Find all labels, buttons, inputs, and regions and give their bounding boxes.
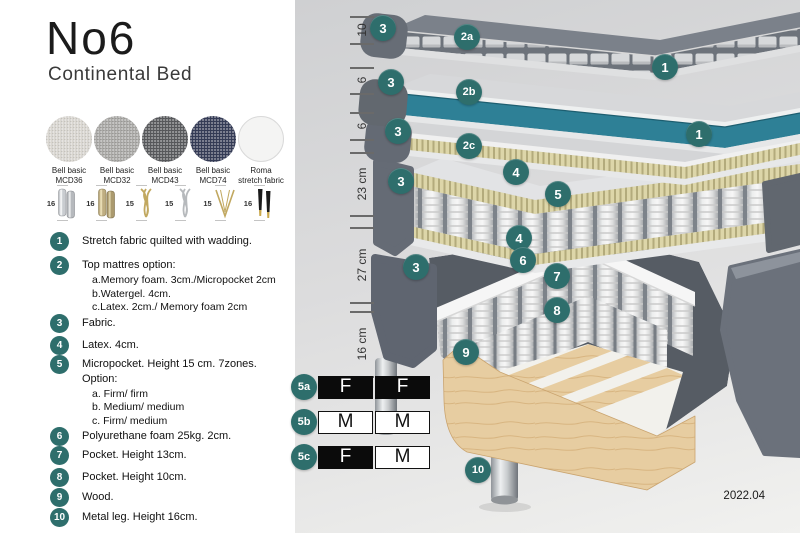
ruler-tick — [350, 67, 374, 69]
spec-number-badge: 9 — [50, 488, 69, 507]
ruler-measurement: 10 — [355, 23, 369, 36]
ruler-tick — [350, 139, 374, 141]
callout-3: 3 — [403, 254, 429, 280]
spec-number-badge: 8 — [50, 468, 69, 487]
leg-option-cylinder-brass: 16 — [84, 184, 119, 222]
spec-item-text: Fabric. — [82, 316, 116, 331]
callout-1: 1 — [686, 121, 712, 147]
spec-item-1: 1Stretch fabric quilted with wadding. — [50, 232, 290, 251]
firmness-badge: 5a — [291, 374, 317, 400]
callout-7: 7 — [544, 263, 570, 289]
dash-icon — [136, 185, 147, 186]
fabric-swatch-circle — [142, 116, 188, 162]
spec-subitem: c.Latex. 2cm./ Memory foam 2cm — [92, 301, 276, 314]
hairpin-gold-leg-icon — [213, 187, 237, 219]
dash-icon — [96, 185, 107, 186]
dash-icon — [175, 185, 186, 186]
leg-height-label: 15 — [126, 199, 134, 208]
base-box — [375, 234, 800, 512]
ruler-tick — [350, 93, 374, 95]
callout-5: 5 — [545, 181, 571, 207]
spec-number-badge: 6 — [50, 427, 69, 446]
ruler-tick — [350, 112, 374, 114]
fabric-swatch-caption: Bell basicMCD43 — [148, 166, 182, 185]
spec-item-text: Pocket. Height 13cm. — [82, 448, 187, 463]
leg-height-label: 16 — [86, 199, 94, 208]
spec-item-4: 4Latex. 4cm. — [50, 336, 290, 355]
spec-number-badge: 10 — [50, 508, 69, 527]
dash-icon — [57, 220, 68, 221]
fabric-swatch-mcd36: Bell basicMCD36 — [45, 116, 93, 185]
spec-item-text: Wood. — [82, 490, 114, 505]
fabric-swatch-caption: Bell basicMCD36 — [52, 166, 86, 185]
spec-subitem: a. Firm/ firm — [92, 388, 290, 401]
spec-item-2: 2Top mattres option:a.Memory foam. 3cm./… — [50, 256, 290, 314]
ruler-tick — [350, 215, 374, 217]
fabric-swatches: Bell basicMCD36Bell basicMCD32Bell basic… — [45, 116, 285, 185]
firmness-cell: M — [375, 411, 430, 434]
fabric-swatch-circle — [190, 116, 236, 162]
ruler-measurement: 6 — [355, 122, 369, 129]
ruler-measurement: 23 cm — [355, 167, 369, 200]
ruler-tick — [350, 152, 374, 154]
spec-number-badge: 1 — [50, 232, 69, 251]
fabric-swatch-caption: Bell basicMCD74 — [196, 166, 230, 185]
ruler-tick — [350, 16, 374, 18]
spec-item-text: Metal leg. Height 16cm. — [82, 510, 198, 525]
ruler-tick — [350, 43, 374, 45]
firmness-cell: F — [318, 446, 373, 469]
fabric-swatch-mcd32: Bell basicMCD32 — [93, 116, 141, 185]
twist-gold-leg-icon — [135, 187, 157, 219]
callout-9: 9 — [453, 339, 479, 365]
page-title: No6 — [46, 14, 295, 62]
leg-height-label: 16 — [47, 199, 55, 208]
spec-subitem: b. Medium/ medium — [92, 401, 290, 414]
twist-silver-leg-icon — [174, 187, 196, 219]
diagram-panel: 106623 cm27 cm16 cm 32a132b32c1345463789… — [295, 0, 800, 533]
spec-item-7: 7Pocket. Height 13cm. — [50, 446, 290, 465]
firmness-cell: F — [318, 376, 373, 399]
spec-number-badge: 7 — [50, 446, 69, 465]
leg-option-twist-gold: 15 — [124, 184, 159, 222]
fabric-swatch-stretch-fabric: Romastretch fabric — [237, 116, 285, 185]
dash-icon — [96, 220, 107, 221]
leg-height-label: 16 — [244, 199, 252, 208]
ruler-measurement: 6 — [355, 77, 369, 84]
leg-option-hairpin-gold: 15 — [203, 184, 238, 222]
dash-icon — [136, 220, 147, 221]
callout-4: 4 — [503, 159, 529, 185]
spec-item-text: Micropocket. Height 15 cm. 7zones. Optio… — [82, 357, 290, 387]
spec-number-badge: 3 — [50, 314, 69, 333]
leg-option-taper-black-gold: 16 — [242, 184, 277, 222]
fabric-swatch-circle — [46, 116, 92, 162]
layer-topmattress-2a — [359, 12, 800, 80]
leg-option-twist-silver: 15 — [163, 184, 198, 222]
fabric-swatch-caption: Bell basicMCD32 — [100, 166, 134, 185]
spec-item-text: Stretch fabric quilted with wadding. — [82, 234, 252, 249]
callout-6: 6 — [510, 247, 536, 273]
dash-icon — [254, 185, 265, 186]
fabric-swatch-circle — [238, 116, 284, 162]
firmness-cell: F — [375, 376, 430, 399]
cylinder-silver-leg-icon — [56, 187, 78, 219]
leg-height-label: 15 — [165, 199, 173, 208]
taper-black-gold-leg-icon — [253, 187, 275, 219]
fabric-swatch-circle — [94, 116, 140, 162]
infographic: No6 Continental Bed Bell basicMCD36Bell … — [0, 0, 800, 533]
callout-8: 8 — [544, 297, 570, 323]
version-label: 2022.04 — [723, 490, 765, 502]
dash-icon — [57, 185, 68, 186]
ruler-measurement: 27 cm — [355, 248, 369, 281]
fabric-swatch-mcd74: Bell basicMCD74 — [189, 116, 237, 185]
fabric-swatch-caption: Romastretch fabric — [238, 166, 284, 185]
firmness-cell: M — [375, 446, 430, 469]
page-subtitle: Continental Bed — [48, 64, 295, 86]
callout-2c: 2c — [456, 133, 482, 159]
callout-3: 3 — [370, 15, 396, 41]
leg-options: 161615151516 — [45, 184, 277, 222]
spec-item-5: 5Micropocket. Height 15 cm. 7zones. Opti… — [50, 355, 290, 428]
left-panel: No6 Continental Bed Bell basicMCD36Bell … — [0, 0, 295, 533]
spec-number-badge: 2 — [50, 256, 69, 275]
leg-option-cylinder-silver: 16 — [45, 184, 80, 222]
ruler-tick — [350, 302, 374, 304]
leg-height-label: 15 — [203, 199, 211, 208]
firmness-badge: 5c — [291, 444, 317, 470]
dash-icon — [215, 220, 226, 221]
callout-1: 1 — [652, 54, 678, 80]
spec-item-9: 9Wood. — [50, 488, 290, 507]
spec-item-text: Polyurethane foam 25kg. 2cm. — [82, 429, 231, 444]
spec-item-3: 3Fabric. — [50, 314, 290, 333]
dash-icon — [175, 220, 186, 221]
callout-3: 3 — [388, 168, 414, 194]
spec-item-text: Pocket. Height 10cm. — [82, 470, 187, 485]
spec-item-8: 8Pocket. Height 10cm. — [50, 468, 290, 487]
spec-subitem: a.Memory foam. 3cm./Micropocket 2cm — [92, 274, 276, 287]
callout-3: 3 — [378, 69, 404, 95]
callout-10: 10 — [465, 457, 491, 483]
ruler-measurement: 16 cm — [355, 327, 369, 360]
dash-icon — [254, 220, 265, 221]
spec-item-6: 6Polyurethane foam 25kg. 2cm. — [50, 427, 290, 446]
cylinder-brass-leg-icon — [96, 187, 118, 219]
spec-item-text: Top mattres option: — [82, 258, 276, 273]
firmness-cell: M — [318, 411, 373, 434]
ruler-tick — [350, 311, 374, 313]
callout-2a: 2a — [454, 24, 480, 50]
spec-subitem: c. Firm/ medium — [92, 415, 290, 428]
spec-number-badge: 5 — [50, 355, 69, 374]
callout-2b: 2b — [456, 79, 482, 105]
spec-number-badge: 4 — [50, 336, 69, 355]
firmness-badge: 5b — [291, 409, 317, 435]
spec-item-text: Latex. 4cm. — [82, 338, 139, 353]
fabric-swatch-mcd43: Bell basicMCD43 — [141, 116, 189, 185]
spec-list: 1Stretch fabric quilted with wadding.2To… — [50, 232, 290, 527]
callout-3: 3 — [385, 118, 411, 144]
dash-icon — [215, 185, 226, 186]
ruler-tick — [350, 227, 374, 229]
spec-item-10: 10Metal leg. Height 16cm. — [50, 508, 290, 527]
spec-subitem: b.Watergel. 4cm. — [92, 288, 276, 301]
